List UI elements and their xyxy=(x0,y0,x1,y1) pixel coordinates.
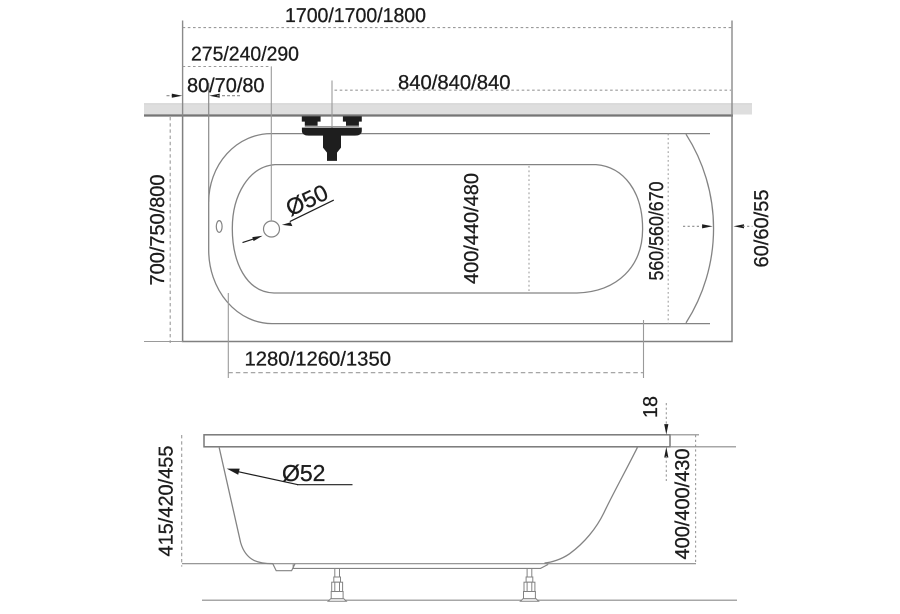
svg-text:415/420/455: 415/420/455 xyxy=(156,446,178,557)
svg-text:840/840/840: 840/840/840 xyxy=(398,72,511,94)
svg-text:60/60/55: 60/60/55 xyxy=(751,190,773,268)
svg-text:1280/1260/1350: 1280/1260/1350 xyxy=(245,348,392,370)
svg-text:700/750/800: 700/750/800 xyxy=(147,175,169,286)
svg-text:400/440/480: 400/440/480 xyxy=(461,173,483,284)
svg-text:18: 18 xyxy=(640,396,662,418)
svg-text:80/70/80: 80/70/80 xyxy=(187,75,265,97)
svg-text:400/400/430: 400/400/430 xyxy=(672,449,694,560)
svg-text:275/240/290: 275/240/290 xyxy=(191,44,299,66)
svg-text:1700/1700/1800: 1700/1700/1800 xyxy=(285,5,426,27)
svg-text:560/560/670: 560/560/670 xyxy=(646,182,668,281)
svg-text:Ø52: Ø52 xyxy=(282,460,325,486)
